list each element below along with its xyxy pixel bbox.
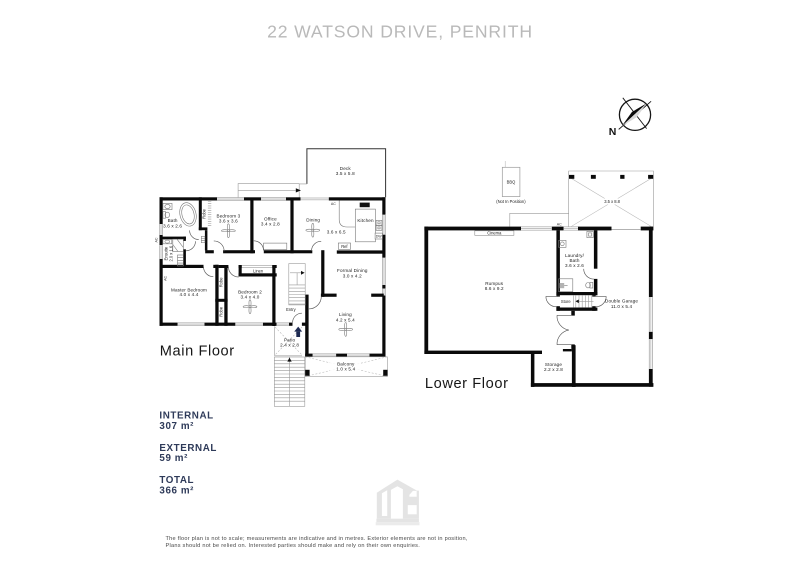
svg-text:3.4 x 2.8: 3.4 x 2.8 — [261, 222, 280, 227]
svg-text:3.5 x 5.8: 3.5 x 5.8 — [336, 171, 355, 176]
svg-text:1.0 x 5.4: 1.0 x 5.4 — [336, 367, 355, 372]
svg-text:Robe: Robe — [219, 277, 224, 288]
svg-text:AC: AC — [154, 237, 158, 242]
svg-text:3.5 x 8.8: 3.5 x 8.8 — [604, 199, 620, 204]
svg-text:3.6 x 3.6: 3.6 x 3.6 — [219, 219, 238, 224]
svg-text:Cinema: Cinema — [487, 231, 502, 236]
svg-text:4.2 x 5.4: 4.2 x 5.4 — [336, 318, 355, 323]
svg-text:Robe: Robe — [219, 306, 224, 317]
svg-text:Deck: Deck — [340, 166, 352, 171]
svg-text:(Not In Position): (Not In Position) — [496, 199, 526, 204]
svg-text:N: N — [609, 126, 617, 138]
svg-text:Main Floor: Main Floor — [160, 344, 235, 360]
svg-text:11.0 x 5.4: 11.0 x 5.4 — [611, 304, 633, 309]
svg-text:3.0 x 4.2: 3.0 x 4.2 — [343, 273, 362, 278]
svg-text:Kitchen: Kitchen — [357, 218, 374, 223]
svg-text:3.4 x 4.0: 3.4 x 4.0 — [241, 294, 260, 299]
svg-text:3.6 x 2.6: 3.6 x 2.6 — [163, 224, 182, 229]
svg-text:AC: AC — [331, 202, 336, 206]
svg-text:2.4 x 2.8: 2.4 x 2.8 — [280, 342, 299, 347]
svg-text:AC: AC — [557, 223, 562, 227]
svg-text:2.2 x 2.8: 2.2 x 2.8 — [544, 367, 563, 372]
svg-text:DW: DW — [376, 235, 383, 239]
svg-text:Plans should not be relied on.: Plans should not be relied on. Intereste… — [166, 543, 421, 549]
svg-text:307 m²: 307 m² — [159, 421, 194, 432]
svg-text:Dining: Dining — [306, 218, 320, 223]
svg-text:Bath: Bath — [168, 218, 178, 223]
svg-text:Living: Living — [339, 312, 352, 317]
svg-text:8.6 x 9.2: 8.6 x 9.2 — [485, 286, 504, 291]
svg-text:3.6 x 6.5: 3.6 x 6.5 — [327, 229, 346, 234]
svg-text:Entry: Entry — [286, 307, 297, 312]
svg-text:59 m²: 59 m² — [159, 453, 188, 464]
svg-text:Store: Store — [561, 299, 572, 304]
svg-text:2.0 x 1.6: 2.0 x 1.6 — [168, 245, 173, 261]
svg-text:BBQ: BBQ — [507, 180, 516, 185]
svg-text:The floor plan is not to scale: The floor plan is not to scale; measurem… — [166, 536, 468, 542]
svg-text:Robe: Robe — [202, 208, 207, 219]
svg-text:INTERNAL: INTERNAL — [159, 410, 213, 421]
svg-text:366 m²: 366 m² — [159, 485, 194, 496]
svg-text:3.6 x 2.6: 3.6 x 2.6 — [565, 263, 584, 268]
svg-text:4.0 x 4.4: 4.0 x 4.4 — [180, 292, 199, 297]
svg-text:Linen: Linen — [253, 269, 264, 274]
svg-text:AC: AC — [163, 276, 167, 281]
svg-text:22 WATSON DRIVE, PENRITH: 22 WATSON DRIVE, PENRITH — [267, 21, 533, 41]
svg-text:Lower Floor: Lower Floor — [425, 376, 509, 392]
svg-text:Ref: Ref — [341, 244, 348, 249]
